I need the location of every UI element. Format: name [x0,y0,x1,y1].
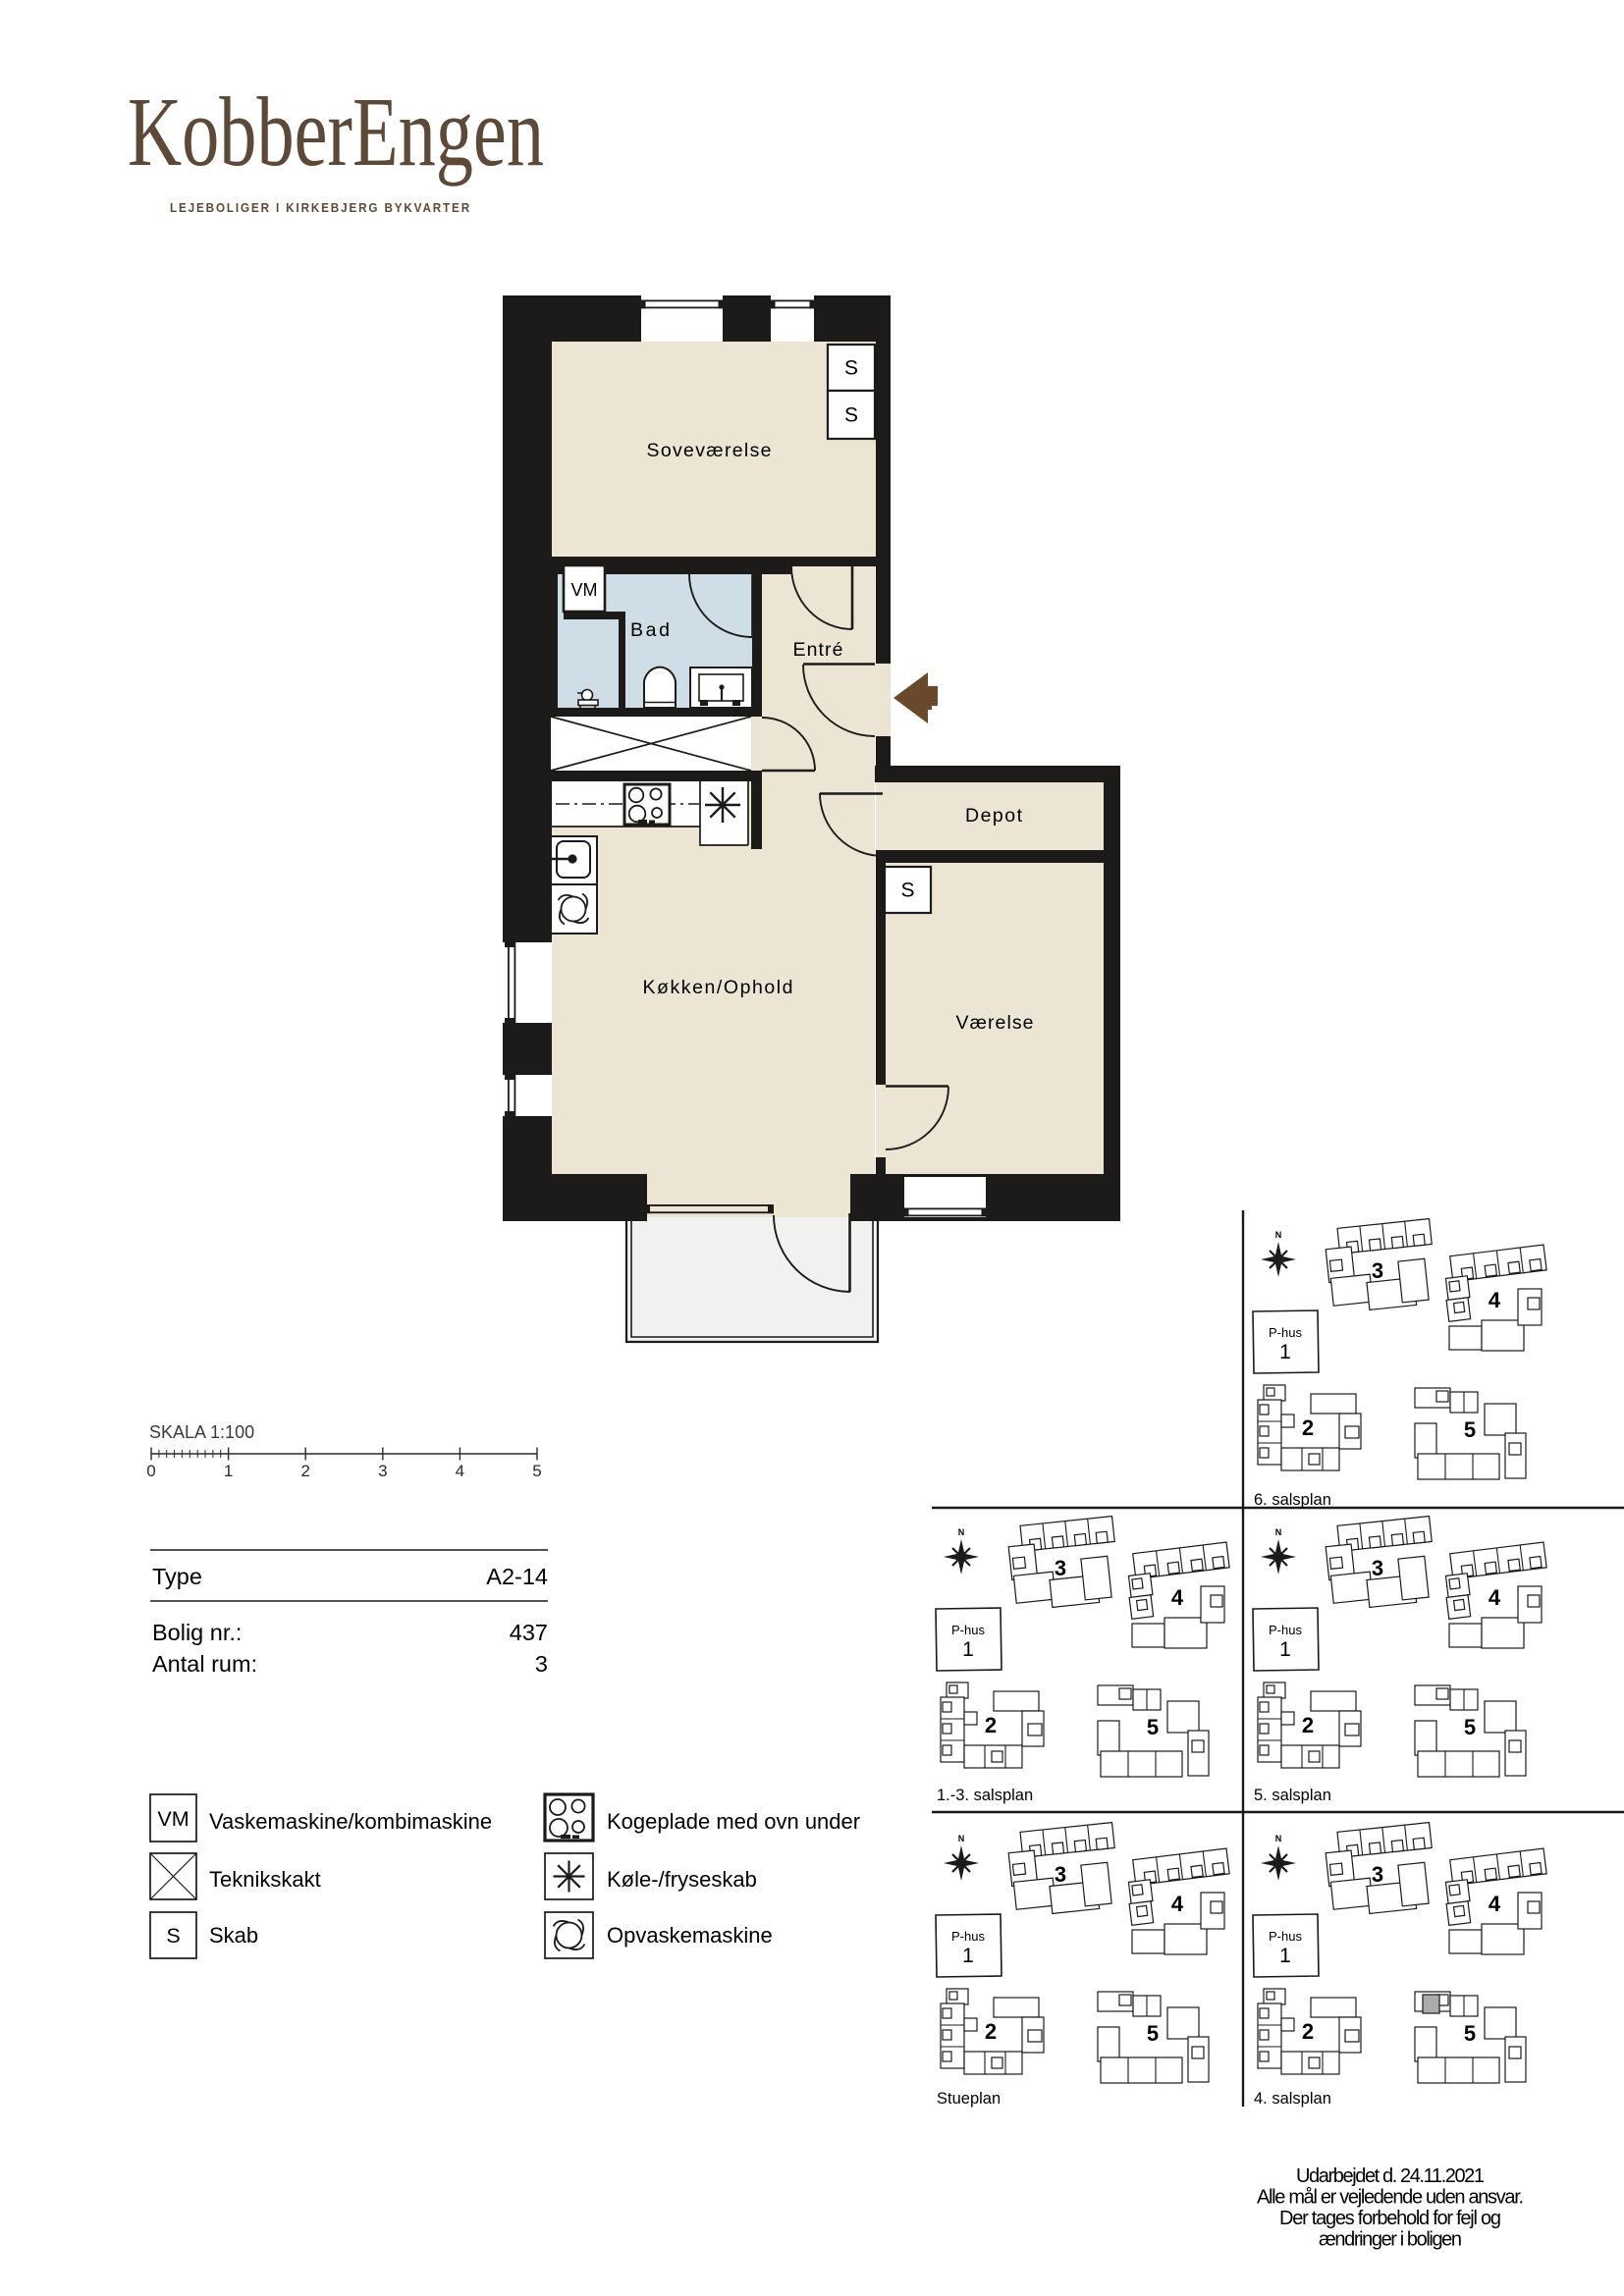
svg-text:Bolig nr.:: Bolig nr.: [152,1620,242,1645]
svg-text:Der tages forbehold for fejl o: Der tages forbehold for fejl og [1279,2208,1501,2229]
svg-text:KobberEngen: KobberEngen [128,77,544,187]
svg-text:5: 5 [532,1462,541,1480]
svg-text:S: S [844,404,858,427]
svg-text:S: S [166,1924,180,1948]
svg-text:5. salsplan: 5. salsplan [1254,1787,1331,1804]
svg-text:VM: VM [157,1807,189,1831]
svg-text:4. salsplan: 4. salsplan [1254,2090,1331,2108]
svg-text:Køle-/fryseskab: Køle-/fryseskab [607,1867,757,1892]
svg-text:437: 437 [510,1620,548,1645]
svg-text:1: 1 [224,1462,233,1480]
svg-text:Bad: Bad [630,619,670,641]
svg-text:ændringer i boligen: ændringer i boligen [1319,2229,1462,2251]
svg-text:LEJEBOLIGER I KIRKEBJERG BYKVA: LEJEBOLIGER I KIRKEBJERG BYKVARTER [170,201,471,215]
svg-text:0: 0 [146,1462,155,1480]
svg-text:Type: Type [152,1564,202,1589]
svg-text:4: 4 [456,1462,464,1480]
svg-text:Vaskemaskine/kombimaskine: Vaskemaskine/kombimaskine [209,1809,492,1834]
svg-text:Teknikskakt: Teknikskakt [209,1867,321,1892]
svg-text:VM: VM [571,580,598,600]
svg-text:Udarbejdet d. 24.11.2021: Udarbejdet d. 24.11.2021 [1296,2165,1485,2187]
svg-text:A2-14: A2-14 [486,1564,548,1589]
svg-text:1.-3. salsplan: 1.-3. salsplan [937,1787,1033,1804]
svg-text:S: S [844,357,858,380]
svg-text:Køkken/Ophold: Køkken/Ophold [643,977,793,998]
svg-text:3: 3 [535,1651,548,1677]
svg-text:Depot: Depot [965,805,1023,827]
svg-text:Entré: Entré [793,639,843,661]
svg-text:Soveværelse: Soveværelse [647,440,772,461]
svg-text:Stueplan: Stueplan [937,2090,1001,2108]
svg-text:Opvaskemaskine: Opvaskemaskine [607,1923,773,1948]
svg-text:S: S [900,880,914,902]
svg-text:Skab: Skab [209,1923,258,1948]
svg-text:6. salsplan: 6. salsplan [1254,1491,1331,1509]
svg-text:Alle mål er vejledende uden an: Alle mål er vejledende uden ansvar. [1257,2187,1524,2209]
svg-text:SKALA 1:100: SKALA 1:100 [149,1422,254,1442]
svg-text:2: 2 [300,1462,309,1480]
svg-text:Kogeplade med ovn under: Kogeplade med ovn under [607,1809,860,1834]
svg-text:Antal rum:: Antal rum: [152,1651,257,1677]
svg-text:3: 3 [378,1462,387,1480]
